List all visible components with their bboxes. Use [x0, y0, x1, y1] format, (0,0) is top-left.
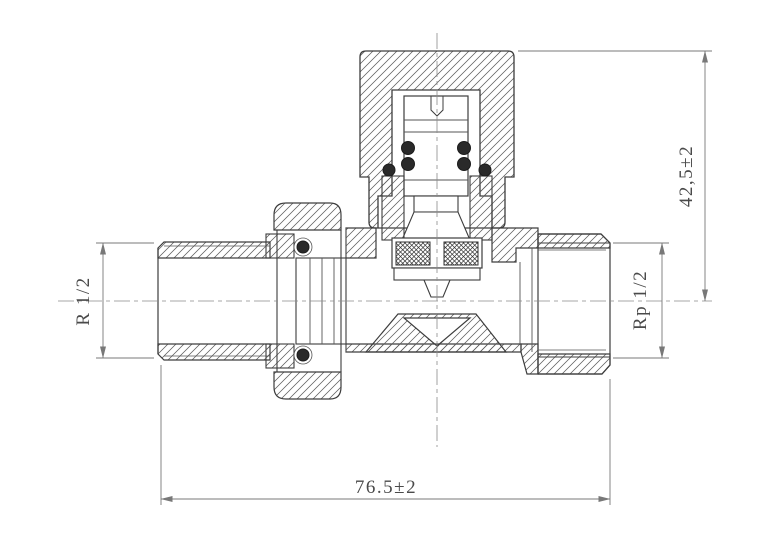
o-ring	[458, 142, 471, 155]
o-ring	[402, 158, 415, 171]
dimension-overall-length: 76.5±2	[161, 365, 610, 505]
bonnet-wall-right	[470, 176, 492, 240]
valve-stem-insert	[402, 96, 471, 240]
valve-cross-section-drawing: 42,5±2 R 1/2 Rp 1/2 76.5±2	[0, 0, 768, 543]
dimension-thread-left: R 1/2	[73, 243, 154, 358]
dimension-label-overall-height: 42,5±2	[676, 145, 697, 207]
dimension-overall-height: 42,5±2	[518, 51, 712, 301]
o-ring	[297, 241, 309, 253]
socket-wall-top	[538, 234, 610, 248]
bonnet-wall-left	[382, 176, 404, 240]
o-ring	[458, 158, 471, 171]
o-ring	[383, 164, 395, 176]
o-ring	[297, 349, 309, 361]
packing-seal-left	[396, 242, 430, 265]
o-ring	[479, 164, 491, 176]
nut-flange-bottom	[274, 372, 341, 399]
socket-female-thread	[538, 234, 610, 374]
dimension-label-thread-left: R 1/2	[73, 276, 94, 325]
body-shoulder-right	[492, 228, 538, 262]
dimension-label-thread-right: Rp 1/2	[630, 270, 651, 330]
stem-bell	[402, 212, 470, 240]
o-ring	[402, 142, 415, 155]
body-step-right	[521, 344, 538, 374]
dimension-thread-right: Rp 1/2	[613, 243, 669, 358]
nut-flange-top	[274, 203, 341, 230]
dimension-label-overall-length: 76.5±2	[355, 477, 417, 498]
valve-seat-bridge	[366, 314, 506, 352]
socket-thread-crest-lines	[538, 243, 610, 357]
tailpiece-wall-bottom	[158, 344, 270, 360]
tailpiece-wall-top	[158, 242, 270, 258]
valve-technical-drawing-page: 42,5±2 R 1/2 Rp 1/2 76.5±2	[0, 0, 768, 543]
body-shoulder-left	[346, 228, 376, 258]
stem-lower	[414, 196, 458, 212]
packing-seal-right	[444, 242, 478, 265]
socket-outline	[538, 234, 610, 374]
socket-thread-root-lines	[538, 250, 606, 350]
